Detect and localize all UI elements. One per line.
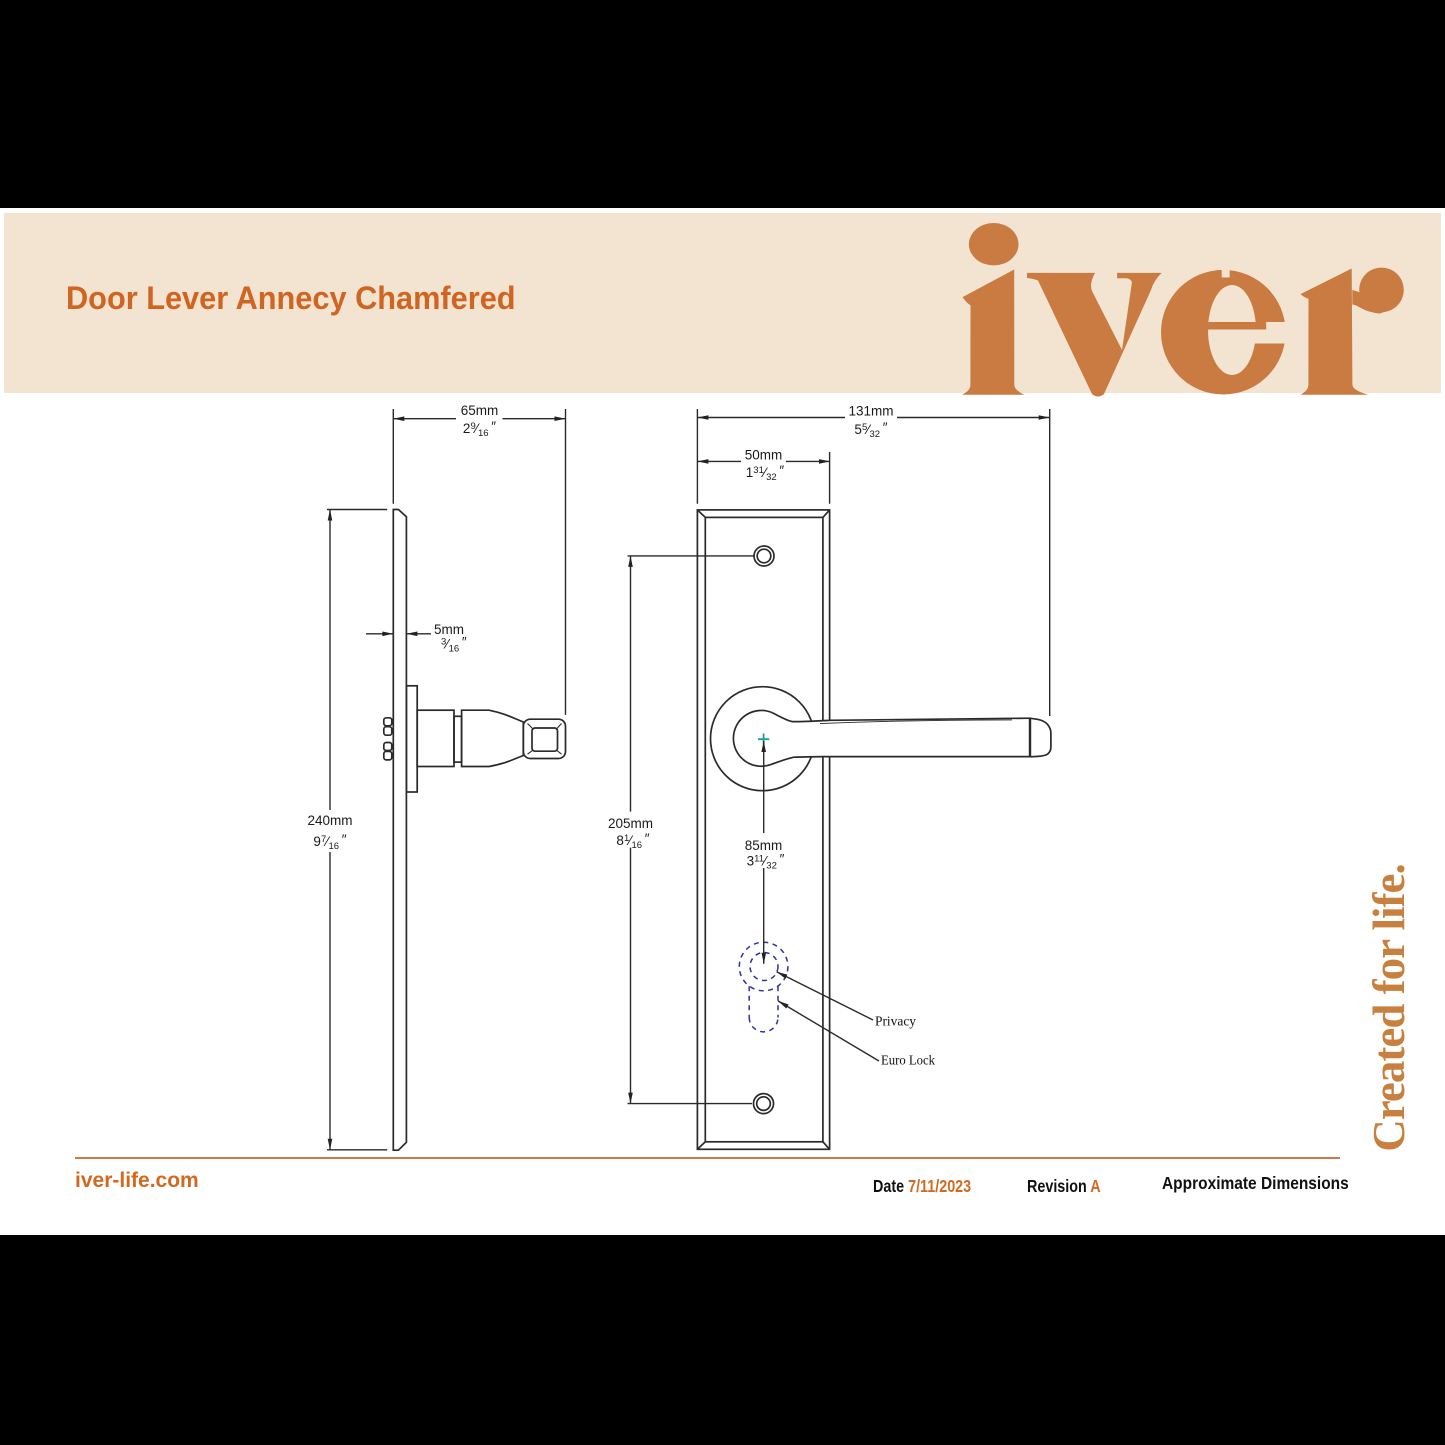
svg-text:205mm: 205mm xyxy=(608,816,653,831)
svg-text:65mm: 65mm xyxy=(461,403,499,418)
svg-text:240mm: 240mm xyxy=(307,813,352,828)
svg-text:29⁄16 ″: 29⁄16 ″ xyxy=(463,419,496,439)
svg-text:Euro Lock: Euro Lock xyxy=(881,1054,935,1069)
svg-text:50mm: 50mm xyxy=(745,448,783,463)
svg-text:131⁄32 ″: 131⁄32 ″ xyxy=(746,463,785,483)
svg-text:97⁄16 ″: 97⁄16 ″ xyxy=(313,832,346,852)
svg-text:81⁄16 ″: 81⁄16 ″ xyxy=(616,831,649,851)
svg-text:Privacy: Privacy xyxy=(875,1015,916,1030)
svg-text:55⁄32 ″: 55⁄32 ″ xyxy=(854,420,887,440)
svg-text:3⁄16 ″: 3⁄16 ″ xyxy=(441,635,467,655)
svg-text:311⁄32 ″: 311⁄32 ″ xyxy=(747,852,785,872)
svg-text:131mm: 131mm xyxy=(848,404,893,419)
